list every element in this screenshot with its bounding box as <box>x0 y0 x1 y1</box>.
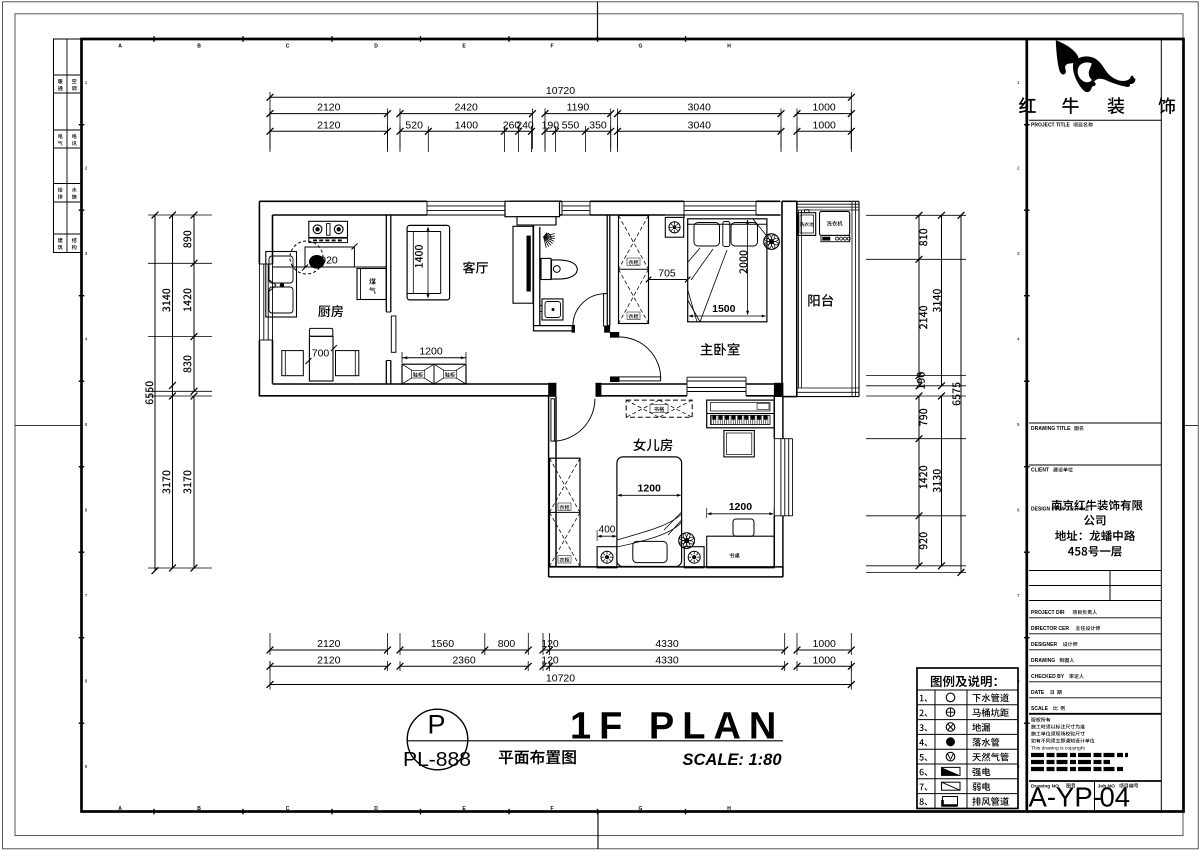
svg-text:DRAWING TITLE: DRAWING TITLE <box>1031 426 1071 432</box>
svg-text:2120: 2120 <box>317 638 341 650</box>
svg-text:2420: 2420 <box>455 102 479 114</box>
svg-text:10720: 10720 <box>546 85 575 97</box>
svg-text:1000: 1000 <box>812 102 836 114</box>
svg-text:520: 520 <box>405 119 423 131</box>
svg-text:C: C <box>286 806 290 812</box>
svg-text:120: 120 <box>541 654 559 666</box>
svg-text:1560: 1560 <box>431 638 455 650</box>
svg-text:A: A <box>118 43 122 49</box>
svg-text:1: 1 <box>85 80 88 85</box>
svg-text:D: D <box>374 43 378 49</box>
svg-text:550: 550 <box>562 119 580 131</box>
svg-text:DIRECTOR CER: DIRECTOR CER <box>1031 626 1069 632</box>
svg-text:H: H <box>727 806 731 812</box>
svg-text:7: 7 <box>1017 593 1020 598</box>
svg-text:6: 6 <box>1017 508 1020 513</box>
svg-text:4330: 4330 <box>655 654 679 666</box>
svg-text:3040: 3040 <box>688 119 712 131</box>
svg-text:705: 705 <box>658 268 676 280</box>
svg-text:2120: 2120 <box>317 654 341 666</box>
svg-text:1200: 1200 <box>419 345 443 357</box>
svg-text:DRAWING: DRAWING <box>1031 658 1055 664</box>
svg-text:1000: 1000 <box>813 638 837 650</box>
svg-text:04: 04 <box>1100 782 1131 813</box>
svg-text:1500: 1500 <box>712 303 736 315</box>
svg-text:6: 6 <box>85 508 88 513</box>
svg-text:1000: 1000 <box>813 119 837 131</box>
svg-text:5: 5 <box>85 422 88 427</box>
svg-text:D: D <box>374 806 378 812</box>
svg-text:700: 700 <box>312 348 330 360</box>
svg-text:DATE: DATE <box>1031 690 1045 696</box>
svg-text:2: 2 <box>85 166 88 171</box>
svg-text:2120: 2120 <box>317 102 341 114</box>
svg-text:10720: 10720 <box>546 673 575 685</box>
svg-text:2360: 2360 <box>452 654 476 666</box>
svg-text:1F PLAN: 1F PLAN <box>570 706 784 748</box>
svg-text:9: 9 <box>85 764 88 769</box>
svg-text:SCALE: SCALE <box>1031 706 1049 712</box>
svg-text:3040: 3040 <box>688 102 712 114</box>
svg-text:P: P <box>427 710 445 740</box>
svg-text:3: 3 <box>1017 251 1020 256</box>
svg-text:A-YP-: A-YP- <box>1029 782 1102 813</box>
svg-text:1: 1 <box>1017 80 1020 85</box>
svg-text:F: F <box>550 43 553 49</box>
svg-text:4: 4 <box>85 337 88 342</box>
svg-text:PROJECT DIR: PROJECT DIR <box>1031 610 1065 616</box>
svg-text:5: 5 <box>1017 422 1020 427</box>
svg-text:190: 190 <box>542 119 560 131</box>
svg-text:1190: 1190 <box>567 102 590 114</box>
svg-text:1400: 1400 <box>455 119 479 131</box>
svg-text:CHECKED BY: CHECKED BY <box>1031 674 1065 680</box>
svg-text:C: C <box>286 43 290 49</box>
svg-text:350: 350 <box>589 119 607 131</box>
svg-text:G: G <box>639 806 643 812</box>
svg-text:PROJECT TITLE: PROJECT TITLE <box>1031 123 1071 129</box>
svg-text:F: F <box>550 806 553 812</box>
svg-text:4330: 4330 <box>655 638 679 650</box>
svg-text:3: 3 <box>85 251 88 256</box>
svg-text:CLIENT: CLIENT <box>1031 468 1049 474</box>
svg-text:2120: 2120 <box>317 119 341 131</box>
svg-text:1200: 1200 <box>638 482 662 494</box>
svg-text:800: 800 <box>498 638 516 650</box>
svg-text:H: H <box>727 43 731 49</box>
svg-text:1000: 1000 <box>813 654 837 666</box>
svg-text:240: 240 <box>516 119 534 131</box>
svg-text:G: G <box>639 43 643 49</box>
svg-text:B: B <box>197 43 201 49</box>
svg-text:PL-888: PL-888 <box>403 749 471 771</box>
svg-text:1200: 1200 <box>729 501 753 513</box>
svg-text:8: 8 <box>85 679 88 684</box>
svg-text:7: 7 <box>85 593 88 598</box>
svg-text:400: 400 <box>599 525 616 536</box>
svg-text:SCALE: 1:80: SCALE: 1:80 <box>682 751 782 769</box>
svg-text:4: 4 <box>1017 337 1020 342</box>
svg-text:120: 120 <box>541 638 559 650</box>
svg-text:2: 2 <box>1017 166 1020 171</box>
svg-text:DESIGNER: DESIGNER <box>1031 642 1058 648</box>
svg-text:B: B <box>197 806 201 812</box>
svg-text:A: A <box>118 806 122 812</box>
svg-text:This drawing is copyright: This drawing is copyright <box>1031 746 1085 752</box>
